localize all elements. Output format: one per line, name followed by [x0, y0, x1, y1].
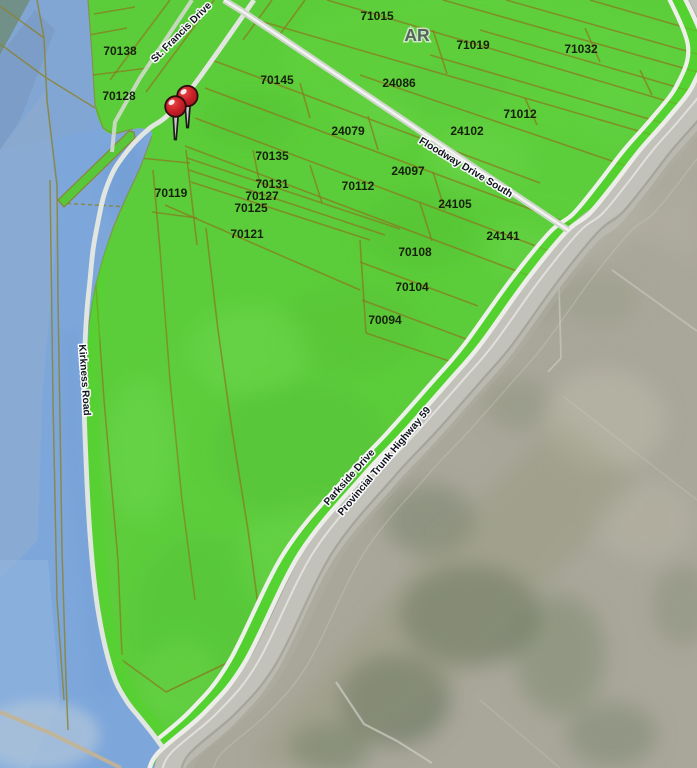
svg-text:24097: 24097 — [391, 164, 425, 178]
svg-text:70121: 70121 — [230, 227, 264, 241]
svg-text:70119: 70119 — [155, 186, 188, 200]
svg-text:70125: 70125 — [234, 201, 268, 215]
svg-text:70104: 70104 — [395, 280, 429, 294]
svg-text:70128: 70128 — [102, 89, 136, 103]
svg-text:24086: 24086 — [382, 76, 416, 90]
svg-text:70112: 70112 — [342, 179, 375, 193]
svg-text:24102: 24102 — [450, 124, 484, 138]
svg-text:71032: 71032 — [564, 42, 598, 56]
svg-text:70094: 70094 — [368, 313, 402, 327]
svg-text:70145: 70145 — [260, 73, 294, 87]
svg-text:AR: AR — [404, 25, 430, 45]
svg-text:70138: 70138 — [103, 44, 137, 58]
svg-text:71019: 71019 — [456, 38, 490, 52]
svg-text:24141: 24141 — [486, 229, 520, 243]
svg-text:71012: 71012 — [503, 107, 537, 121]
svg-text:71015: 71015 — [360, 9, 394, 23]
svg-text:70135: 70135 — [255, 149, 289, 163]
svg-text:24079: 24079 — [331, 124, 365, 138]
svg-text:24105: 24105 — [438, 197, 472, 211]
svg-text:70108: 70108 — [398, 245, 432, 259]
